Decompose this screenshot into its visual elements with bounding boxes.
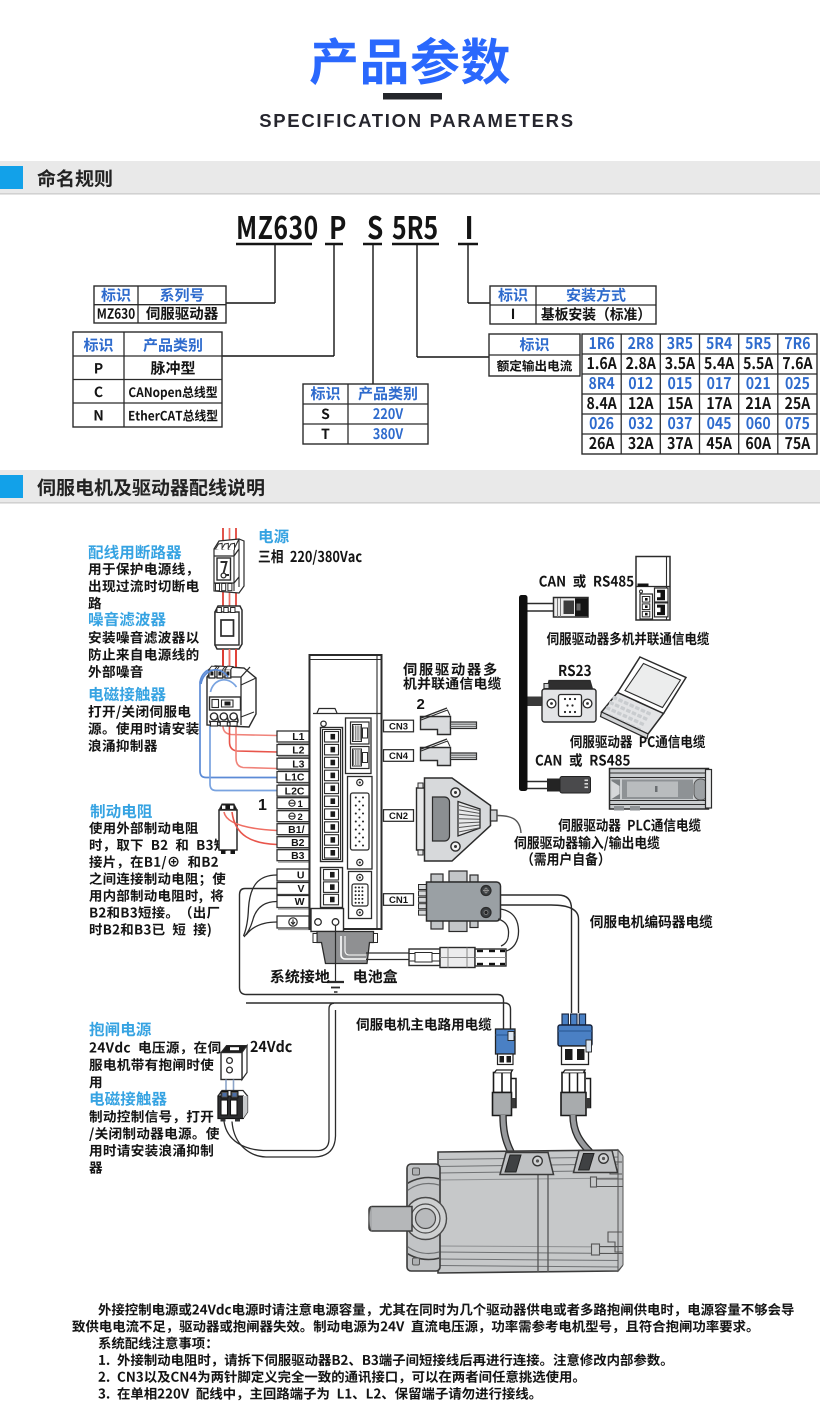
svg-text:CN3: CN3 bbox=[389, 721, 408, 732]
svg-text:W: W bbox=[295, 896, 305, 908]
svg-text:1: 1 bbox=[298, 799, 304, 810]
svg-text:2: 2 bbox=[298, 812, 303, 823]
svg-text:U: U bbox=[297, 870, 305, 882]
svg-text:V: V bbox=[297, 883, 304, 895]
svg-text:B1/: B1/ bbox=[288, 824, 304, 836]
svg-text:L2: L2 bbox=[292, 745, 304, 757]
svg-text:CN1: CN1 bbox=[389, 895, 409, 906]
svg-text:SPECIFICATION PARAMETERS: SPECIFICATION PARAMETERS bbox=[259, 110, 575, 131]
svg-text:CN4: CN4 bbox=[389, 751, 409, 762]
svg-text:1: 1 bbox=[258, 797, 267, 814]
svg-text:L1C: L1C bbox=[285, 772, 305, 784]
svg-text:L1: L1 bbox=[292, 731, 304, 743]
svg-text:L2C: L2C bbox=[285, 785, 305, 797]
svg-text:B3: B3 bbox=[291, 850, 305, 862]
svg-text:2: 2 bbox=[417, 696, 425, 713]
svg-text:CN2: CN2 bbox=[389, 811, 408, 822]
svg-text:L3: L3 bbox=[292, 758, 304, 770]
svg-text:B2: B2 bbox=[291, 837, 305, 849]
